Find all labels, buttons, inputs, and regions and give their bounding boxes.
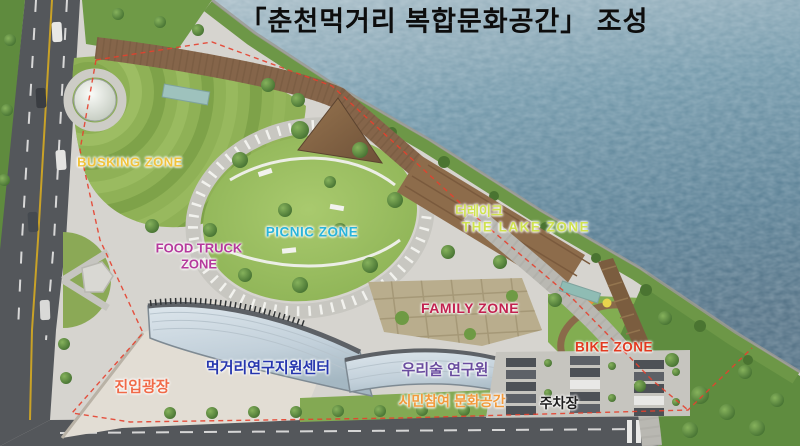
parking-lot bbox=[486, 350, 690, 418]
facility-label-food-research-center: 먹거리연구지원센터 bbox=[206, 357, 330, 378]
zone-label-the-lake-korean: 더레이크 bbox=[455, 201, 503, 220]
zone-label-the-lake: THE LAKE ZONE bbox=[462, 220, 590, 235]
facility-label-liquor-institute: 우리술 연구원 bbox=[402, 359, 489, 380]
facility-label-citizen-culture-space: 시민참여 문화공간 bbox=[399, 391, 506, 411]
zone-label-bike: BIKE ZONE bbox=[575, 340, 653, 355]
zone-label-picnic: PICNIC ZONE bbox=[266, 225, 359, 240]
zone-label-food-truck: FOOD TRUCK ZONE bbox=[149, 240, 249, 271]
site-plan-image: 「춘천먹거리 복합문화공간」 조성 BUSKING ZONE FOOD TRUC… bbox=[0, 0, 800, 446]
zone-label-busking: BUSKING ZONE bbox=[77, 155, 183, 170]
dome-stage bbox=[68, 73, 122, 127]
facility-label-parking: 주차장 bbox=[540, 393, 579, 413]
facility-label-entry-plaza: 진입광장 bbox=[114, 376, 169, 397]
page-title: 「춘천먹거리 복합문화공간」 조성 bbox=[240, 0, 649, 39]
zone-label-family: FAMILY ZONE bbox=[421, 300, 519, 316]
